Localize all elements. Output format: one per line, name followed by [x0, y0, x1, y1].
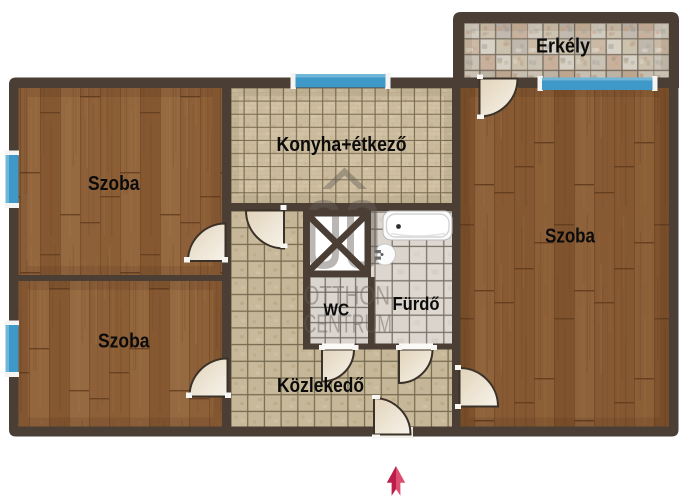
svg-text:Közlekedő: Közlekedő — [277, 375, 364, 397]
svg-text:WC: WC — [324, 300, 350, 320]
svg-text:Fürdő: Fürdő — [393, 293, 440, 314]
svg-text:Konyha+étkező: Konyha+étkező — [277, 133, 407, 156]
svg-text:Szoba: Szoba — [88, 172, 140, 195]
svg-text:Szoba: Szoba — [98, 330, 150, 353]
svg-text:Szoba: Szoba — [545, 226, 596, 248]
svg-text:Erkély: Erkély — [536, 36, 591, 58]
